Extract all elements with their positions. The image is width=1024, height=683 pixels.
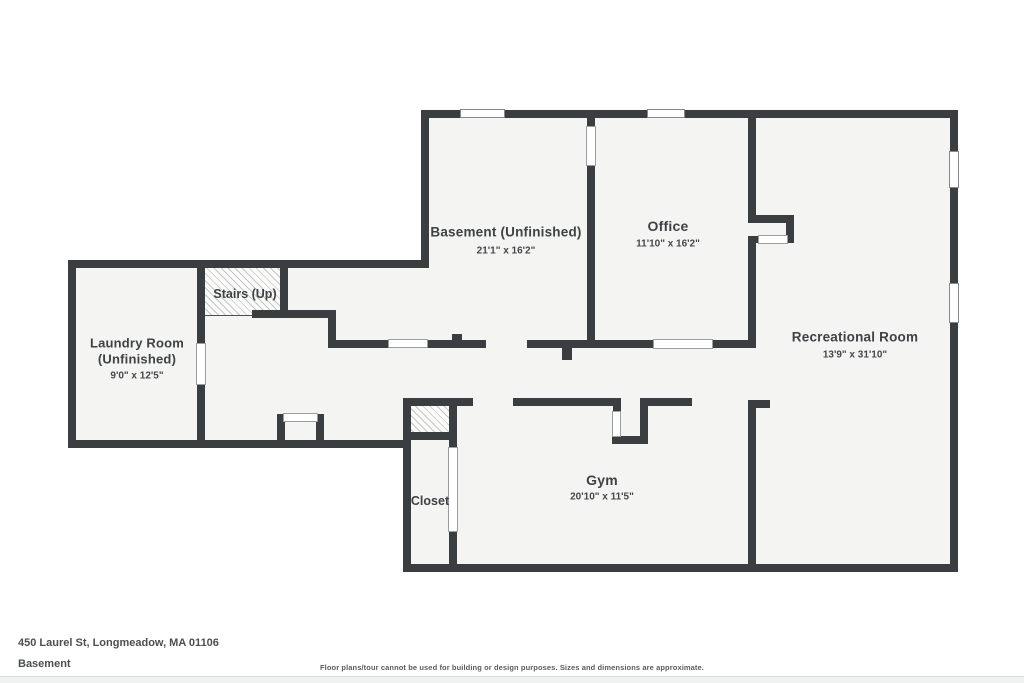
door-opening	[758, 235, 788, 244]
door-opening	[612, 411, 621, 437]
wall-segment	[68, 440, 411, 448]
floor-plan: Basement (Unfinished) 21'1" x 16'2" Offi…	[0, 0, 1024, 683]
wall-segment	[449, 398, 457, 447]
window	[949, 151, 959, 188]
window	[460, 109, 505, 118]
wall-segment	[197, 385, 205, 448]
footer-disclaimer: Floor plans/tour cannot be used for buil…	[0, 663, 1024, 672]
wall-segment	[68, 260, 429, 268]
room-label-recreational: Recreational Room	[792, 330, 918, 345]
door-opening	[388, 339, 428, 348]
wall-segment	[421, 110, 429, 268]
room-label-basement: Basement (Unfinished)	[430, 225, 581, 240]
wall-segment	[647, 398, 692, 406]
closet-hatch	[408, 403, 452, 435]
room-label-laundry-2: (Unfinished)	[98, 352, 176, 367]
stairs-label: Stairs (Up)	[213, 287, 276, 301]
door-opening	[586, 126, 596, 166]
wall-segment	[449, 532, 457, 572]
wall-segment	[748, 110, 756, 215]
door-opening	[448, 447, 458, 532]
wall-segment	[68, 260, 76, 448]
wall-segment	[513, 398, 615, 406]
window	[647, 109, 685, 118]
room-dims-office: 11'10" x 16'2"	[636, 239, 700, 250]
door-opening	[283, 413, 318, 422]
wall-segment	[504, 110, 648, 118]
wall-segment	[950, 322, 958, 572]
wall-segment	[684, 110, 958, 118]
wall-segment	[403, 398, 411, 572]
wall-segment	[252, 310, 336, 318]
wall-segment	[562, 348, 572, 360]
window	[949, 283, 959, 323]
door-opening	[653, 339, 713, 349]
wall-segment	[640, 398, 648, 444]
wall-segment	[748, 400, 770, 408]
wall-segment	[748, 236, 756, 348]
wall-segment	[587, 110, 595, 126]
wall-segment	[328, 340, 388, 348]
room-dims-basement: 21'1" x 16'2"	[477, 246, 536, 257]
wall-segment	[613, 398, 621, 412]
footer-address: 450 Laurel St, Longmeadow, MA 01106	[18, 637, 219, 649]
wall-segment	[197, 260, 205, 343]
wall-segment	[748, 400, 756, 572]
wall-segment	[280, 264, 288, 311]
room-dims-recreational: 13'9" x 31'10"	[823, 350, 887, 361]
room-label-gym: Gym	[586, 472, 618, 488]
wall-segment	[403, 564, 958, 572]
room-label-laundry-1: Laundry Room	[90, 336, 184, 351]
wall-segment	[428, 340, 486, 348]
room-dims-gym: 20'10" x 11'5"	[570, 492, 634, 503]
wall-segment	[950, 187, 958, 284]
room-label-closet: Closet	[411, 494, 449, 508]
room-label-office: Office	[648, 218, 689, 234]
wall-segment	[452, 334, 462, 341]
wall-segment	[587, 166, 595, 348]
wall-segment	[950, 110, 958, 152]
room-dims-laundry: 9'0" x 12'5"	[110, 371, 163, 382]
footer-bottom-bar	[0, 676, 1024, 683]
wall-segment	[405, 398, 473, 406]
door-opening	[196, 343, 206, 385]
